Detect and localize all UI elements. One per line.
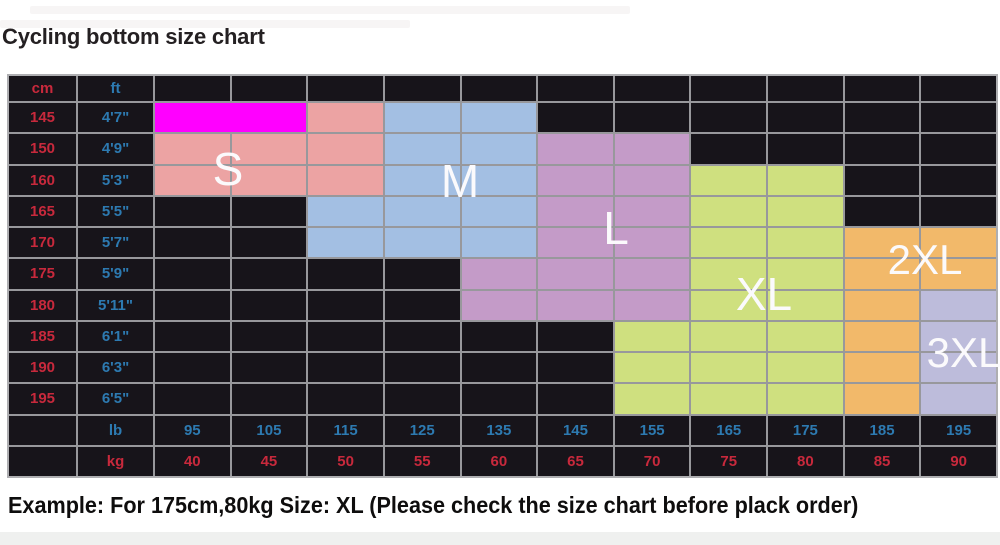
- size-cell-xl: [768, 166, 843, 195]
- weight-lb-cell: 195: [921, 416, 996, 445]
- weight-lb-cell: 175: [768, 416, 843, 445]
- empty-cell: [845, 166, 920, 195]
- size-cell-xl: [691, 322, 766, 351]
- top-artifact: [30, 6, 630, 14]
- size-cell-xl: [768, 228, 843, 257]
- size-cell-l: [615, 228, 690, 257]
- size-cell-3xl: [921, 322, 996, 351]
- empty-cell: [308, 322, 383, 351]
- size-cell-2xl: [845, 259, 920, 288]
- empty-cell: [385, 76, 460, 101]
- empty-cell: [845, 103, 920, 132]
- empty-cell: [538, 384, 613, 413]
- size-cell-3xl: [921, 291, 996, 320]
- size-cell-s: [308, 166, 383, 195]
- weight-lb-cell: 105: [232, 416, 307, 445]
- size-cell-s: [155, 166, 230, 195]
- size-cell-l: [615, 134, 690, 163]
- weight-lb-cell: 115: [308, 416, 383, 445]
- height-cm-cell: 150: [9, 134, 76, 163]
- empty-cell: [615, 103, 690, 132]
- height-ft-cell: 5'9": [78, 259, 153, 288]
- empty-cell: [462, 384, 537, 413]
- size-cell-m: [385, 134, 460, 163]
- size-cell-l: [462, 259, 537, 288]
- size-cell-l: [538, 197, 613, 226]
- empty-cell: [691, 134, 766, 163]
- height-ft-cell: 4'9": [78, 134, 153, 163]
- weight-lb-cell: 185: [845, 416, 920, 445]
- size-cell-xl: [768, 353, 843, 382]
- size-cell-xl: [768, 291, 843, 320]
- empty-cell: [155, 353, 230, 382]
- size-cell-xl: [691, 166, 766, 195]
- empty-cell: [385, 322, 460, 351]
- empty-cell: [538, 353, 613, 382]
- weight-kg-cell: 55: [385, 447, 460, 476]
- size-cell-m: [462, 166, 537, 195]
- empty-cell: [232, 76, 307, 101]
- size-cell-2xl: [921, 228, 996, 257]
- empty-cell: [768, 76, 843, 101]
- empty-cell: [691, 76, 766, 101]
- empty-cell: [308, 76, 383, 101]
- size-cell-l: [538, 134, 613, 163]
- size-cell-m: [385, 228, 460, 257]
- size-cell-xl: [768, 259, 843, 288]
- highlight-cell: [155, 103, 306, 132]
- empty-cell: [845, 76, 920, 101]
- height-cm-cell: 145: [9, 103, 76, 132]
- size-cell-xl: [615, 384, 690, 413]
- weight-kg-cell: 80: [768, 447, 843, 476]
- size-cell-2xl: [845, 228, 920, 257]
- empty-cell: [232, 259, 307, 288]
- size-cell-2xl: [845, 291, 920, 320]
- example-note: Example: For 175cm,80kg Size: XL (Please…: [8, 492, 858, 519]
- empty-cell: [921, 197, 996, 226]
- size-cell-m: [462, 228, 537, 257]
- empty-cell: [845, 134, 920, 163]
- size-cell-xl: [691, 384, 766, 413]
- size-cell-l: [615, 259, 690, 288]
- size-cell-xl: [691, 291, 766, 320]
- size-cell-l: [462, 291, 537, 320]
- size-cell-2xl: [845, 384, 920, 413]
- size-cell-s: [232, 166, 307, 195]
- size-cell-m: [308, 197, 383, 226]
- weight-lb-cell: 165: [691, 416, 766, 445]
- height-ft-cell: 5'7": [78, 228, 153, 257]
- weight-kg-cell: 85: [845, 447, 920, 476]
- empty-cell: [921, 76, 996, 101]
- empty-cell: [232, 291, 307, 320]
- height-ft-cell: 5'5": [78, 197, 153, 226]
- size-cell-xl: [691, 228, 766, 257]
- size-cell-l: [615, 197, 690, 226]
- size-cell-s: [308, 134, 383, 163]
- empty-cell: [385, 259, 460, 288]
- weight-lb-cell: 125: [385, 416, 460, 445]
- empty-cell: [155, 384, 230, 413]
- empty-cell: [691, 103, 766, 132]
- kg-header-cell: kg: [78, 447, 153, 476]
- empty-cell: [615, 76, 690, 101]
- size-cell-xl: [691, 197, 766, 226]
- size-cell-xl: [615, 353, 690, 382]
- empty-cell: [155, 322, 230, 351]
- size-cell-l: [538, 259, 613, 288]
- empty-cell: [385, 384, 460, 413]
- weight-lb-cell: 155: [615, 416, 690, 445]
- weight-kg-cell: 50: [308, 447, 383, 476]
- size-cell-m: [385, 166, 460, 195]
- size-cell-m: [385, 197, 460, 226]
- size-cell-l: [538, 166, 613, 195]
- empty-cell: [155, 228, 230, 257]
- size-cell-xl: [615, 322, 690, 351]
- empty-cell: [155, 291, 230, 320]
- empty-cell: [308, 384, 383, 413]
- height-cm-cell: 160: [9, 166, 76, 195]
- height-cm-cell: 175: [9, 259, 76, 288]
- height-cm-cell: 190: [9, 353, 76, 382]
- weight-lb-cell: 145: [538, 416, 613, 445]
- size-cell-l: [538, 291, 613, 320]
- page: Cycling bottom size chart cmft1454'7"150…: [0, 0, 1000, 545]
- empty-cell: [538, 76, 613, 101]
- height-ft-cell: 6'5": [78, 384, 153, 413]
- size-cell-m: [462, 134, 537, 163]
- height-ft-cell: 5'11": [78, 291, 153, 320]
- weight-kg-cell: 75: [691, 447, 766, 476]
- empty-cell: [308, 291, 383, 320]
- cm-header-cell: cm: [9, 76, 76, 101]
- size-cell-2xl: [921, 259, 996, 288]
- ft-header-cell: ft: [78, 76, 153, 101]
- size-chart-grid: cmft1454'7"1504'9"1605'3"1655'5"1705'7"1…: [7, 74, 998, 478]
- empty-cell: [232, 384, 307, 413]
- size-chart-table: cmft1454'7"1504'9"1605'3"1655'5"1705'7"1…: [7, 74, 998, 478]
- empty-cell: [462, 322, 537, 351]
- size-cell-m: [308, 228, 383, 257]
- height-cm-cell: 170: [9, 228, 76, 257]
- size-cell-xl: [691, 259, 766, 288]
- weight-lb-cell: 95: [155, 416, 230, 445]
- size-cell-xl: [768, 384, 843, 413]
- size-cell-l: [615, 291, 690, 320]
- empty-cell: [845, 197, 920, 226]
- empty-cell: [155, 76, 230, 101]
- size-cell-l: [538, 228, 613, 257]
- empty-cell: [9, 447, 76, 476]
- empty-cell: [921, 166, 996, 195]
- size-cell-s: [308, 103, 383, 132]
- empty-cell: [385, 291, 460, 320]
- empty-cell: [232, 228, 307, 257]
- size-cell-2xl: [845, 353, 920, 382]
- weight-lb-cell: 135: [462, 416, 537, 445]
- size-cell-3xl: [921, 353, 996, 382]
- size-cell-3xl: [921, 384, 996, 413]
- empty-cell: [308, 353, 383, 382]
- height-cm-cell: 165: [9, 197, 76, 226]
- empty-cell: [462, 353, 537, 382]
- size-cell-xl: [691, 353, 766, 382]
- empty-cell: [462, 76, 537, 101]
- size-cell-2xl: [845, 322, 920, 351]
- size-cell-xl: [768, 322, 843, 351]
- empty-cell: [308, 259, 383, 288]
- height-cm-cell: 195: [9, 384, 76, 413]
- empty-cell: [921, 103, 996, 132]
- weight-kg-cell: 60: [462, 447, 537, 476]
- empty-cell: [232, 353, 307, 382]
- lb-header-cell: lb: [78, 416, 153, 445]
- empty-cell: [232, 197, 307, 226]
- height-ft-cell: 4'7": [78, 103, 153, 132]
- empty-cell: [155, 197, 230, 226]
- empty-cell: [9, 416, 76, 445]
- size-cell-s: [232, 134, 307, 163]
- bottom-strip: [0, 532, 1000, 545]
- empty-cell: [385, 353, 460, 382]
- page-title: Cycling bottom size chart: [2, 24, 265, 50]
- height-cm-cell: 185: [9, 322, 76, 351]
- weight-kg-cell: 40: [155, 447, 230, 476]
- empty-cell: [768, 103, 843, 132]
- size-cell-l: [615, 166, 690, 195]
- weight-kg-cell: 65: [538, 447, 613, 476]
- height-ft-cell: 5'3": [78, 166, 153, 195]
- size-cell-xl: [768, 197, 843, 226]
- height-ft-cell: 6'3": [78, 353, 153, 382]
- empty-cell: [155, 259, 230, 288]
- empty-cell: [921, 134, 996, 163]
- empty-cell: [768, 134, 843, 163]
- empty-cell: [232, 322, 307, 351]
- weight-kg-cell: 70: [615, 447, 690, 476]
- size-cell-m: [385, 103, 460, 132]
- size-cell-m: [462, 103, 537, 132]
- empty-cell: [538, 103, 613, 132]
- height-cm-cell: 180: [9, 291, 76, 320]
- weight-kg-cell: 45: [232, 447, 307, 476]
- size-cell-m: [462, 197, 537, 226]
- size-cell-s: [155, 134, 230, 163]
- weight-kg-cell: 90: [921, 447, 996, 476]
- height-ft-cell: 6'1": [78, 322, 153, 351]
- empty-cell: [538, 322, 613, 351]
